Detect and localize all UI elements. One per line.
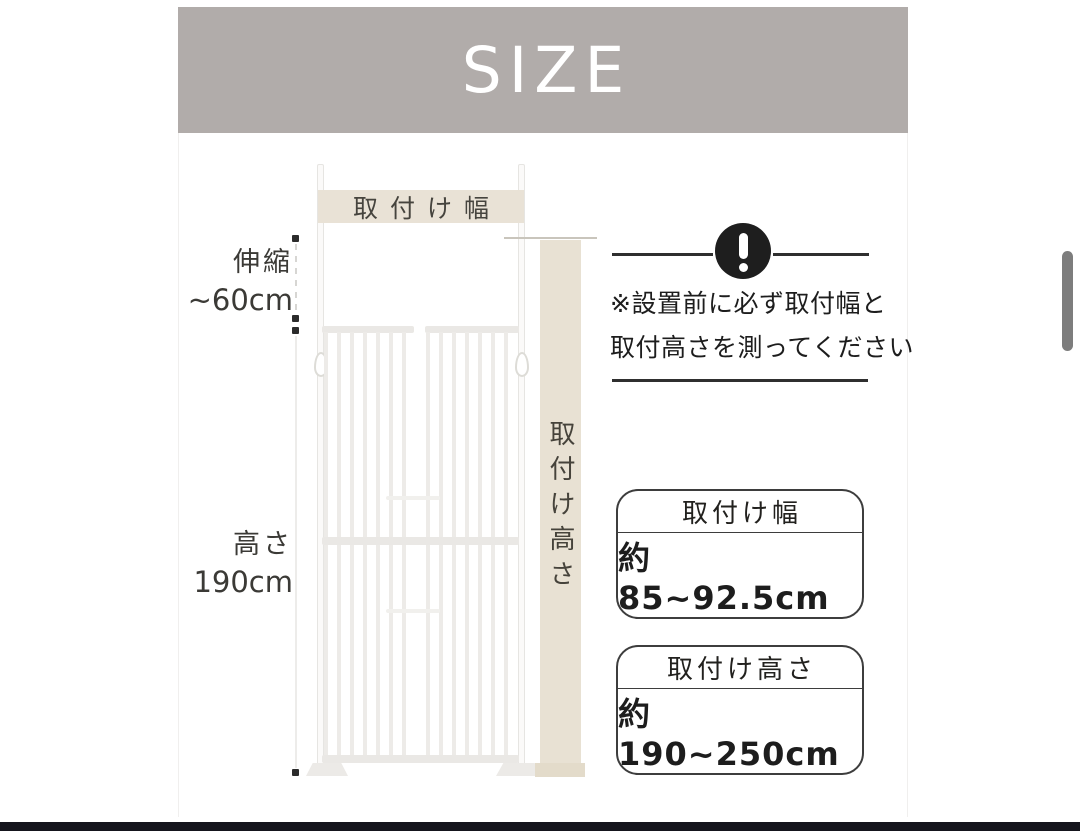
gate-width-label-bar: 取付け幅 (318, 190, 524, 223)
mounting-height-vertical-label: 取付け高さ (540, 412, 581, 602)
spec-box-height-title: 取付け高さ (618, 647, 862, 688)
gate-bottom-rail (322, 755, 519, 763)
exclamation-icon-dot (739, 263, 748, 272)
measure-dot-bottom (292, 769, 299, 776)
card-left-edge (178, 133, 179, 817)
size-banner: SIZE (178, 7, 908, 133)
notice-text-line2: 取付高さを測ってください (610, 328, 872, 364)
gate-width-label: 取付け幅 (341, 189, 501, 225)
measure-dot-mid-lower (292, 327, 299, 334)
extension-label-line2: ~60cm (140, 283, 293, 317)
height-label-line2: 190cm (140, 565, 293, 599)
spec-box-height-value: 約190~250cm (618, 689, 862, 773)
extension-label: 伸縮 ~60cm (140, 240, 293, 317)
spec-box-width-value: 約85~92.5cm (618, 533, 862, 617)
gate-left-pole (317, 164, 324, 769)
notice-divider-right (773, 253, 869, 256)
exclamation-icon-bar (739, 233, 748, 259)
gate-bars-left (324, 332, 414, 758)
spec-box-mounting-height: 取付け高さ 約190~250cm (616, 645, 864, 775)
notice-divider-left (612, 253, 713, 256)
size-banner-title: SIZE (455, 34, 632, 107)
notice-divider-bottom (612, 379, 868, 382)
gate-right-pole (518, 164, 525, 769)
card-right-edge (907, 133, 908, 817)
ceiling-line (504, 237, 597, 239)
height-label-line1: 高さ (140, 522, 293, 561)
gate-mid-rail (322, 537, 519, 545)
tension-bolt-right-icon (515, 352, 529, 377)
measure-line-height (295, 336, 297, 768)
measure-dot-mid-upper (292, 315, 299, 322)
wall-column-foot (535, 763, 585, 777)
gate-left-foot (306, 763, 348, 776)
gate-bars-right (426, 332, 516, 758)
height-label: 高さ 190cm (140, 522, 293, 599)
notice-text-line1: ※設置前に必ず取付幅と (610, 284, 872, 320)
scrollbar-thumb[interactable] (1062, 251, 1073, 351)
gate-latch-lower (386, 609, 440, 613)
extension-label-line1: 伸縮 (140, 240, 293, 279)
spec-box-mounting-width: 取付け幅 約85~92.5cm (616, 489, 864, 619)
measure-dash-extension (295, 244, 297, 314)
spec-box-width-title: 取付け幅 (618, 491, 862, 532)
measure-dot-top (292, 235, 299, 242)
gate-latch-upper (386, 496, 440, 500)
bottom-bar (0, 822, 1080, 831)
